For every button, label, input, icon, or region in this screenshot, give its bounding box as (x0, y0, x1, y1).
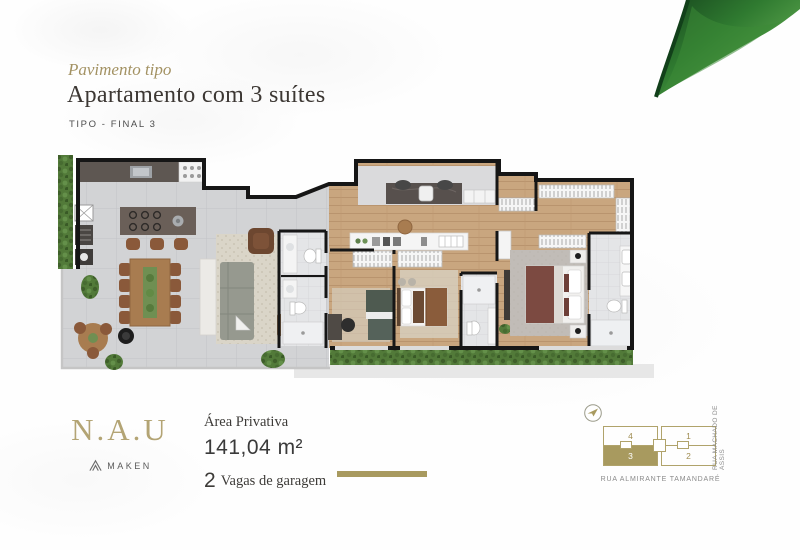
bathrooms-column (281, 233, 326, 346)
brochure-page: Pavimento tipo Apartamento com 3 suítes … (0, 0, 800, 550)
unit-info: Área Privativa 141,04 m² 2Vagas de garag… (204, 414, 326, 493)
entry-closet (499, 198, 536, 211)
garage-label: Vagas de garagem (221, 473, 326, 489)
sidewalk (294, 364, 654, 378)
siteplan-notch-left (620, 441, 632, 449)
floor-plan (48, 146, 668, 388)
maken-mountain-icon (88, 458, 103, 472)
gold-divider-bar (337, 471, 427, 477)
siteplan-core-notch (653, 439, 666, 452)
master-bathroom (589, 233, 632, 348)
street-label-side: RUA MACHADO DE ASSIS (712, 398, 726, 470)
area-value: 141,04 m² (204, 436, 326, 460)
page-title: Apartamento com 3 suítes (67, 82, 325, 109)
area-label: Área Privativa (204, 414, 326, 431)
eyebrow-text: Pavimento tipo (68, 60, 171, 80)
street-label-bottom: RUA ALMIRANTE TAMANDARÉ (598, 476, 723, 483)
maken-label: MAKEN (107, 461, 152, 471)
type-label: TIPO - FINAL 3 (69, 119, 157, 130)
nau-logo: N.A.U (70, 412, 170, 448)
leaf-photo (640, 0, 800, 110)
siteplan-key: 4 3 1 2 (603, 426, 716, 466)
garage-info: 2Vagas de garagem (204, 469, 326, 493)
maken-logo: MAKEN (70, 458, 170, 477)
siteplan-notch-right (677, 441, 689, 449)
garage-number: 2 (204, 469, 216, 492)
compass-icon (583, 403, 603, 423)
